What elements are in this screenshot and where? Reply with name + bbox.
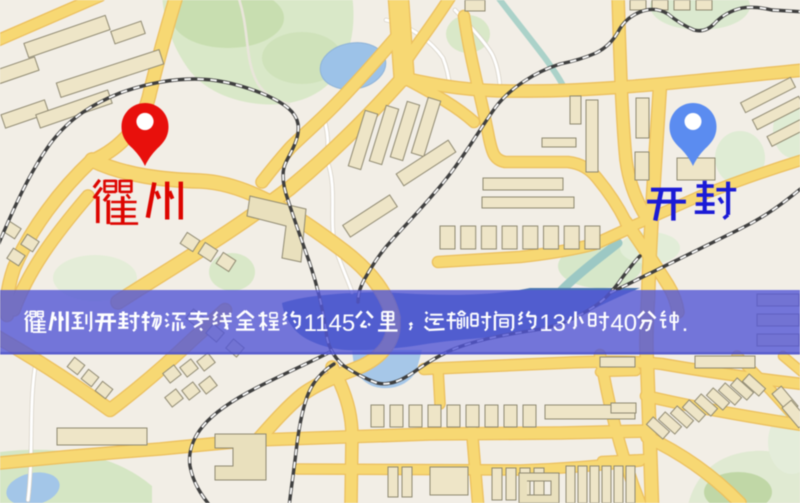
- svg-text:13: 13: [539, 310, 566, 337]
- svg-text:.: .: [682, 310, 689, 337]
- svg-text:1145: 1145: [304, 310, 356, 337]
- svg-text:40: 40: [610, 310, 637, 337]
